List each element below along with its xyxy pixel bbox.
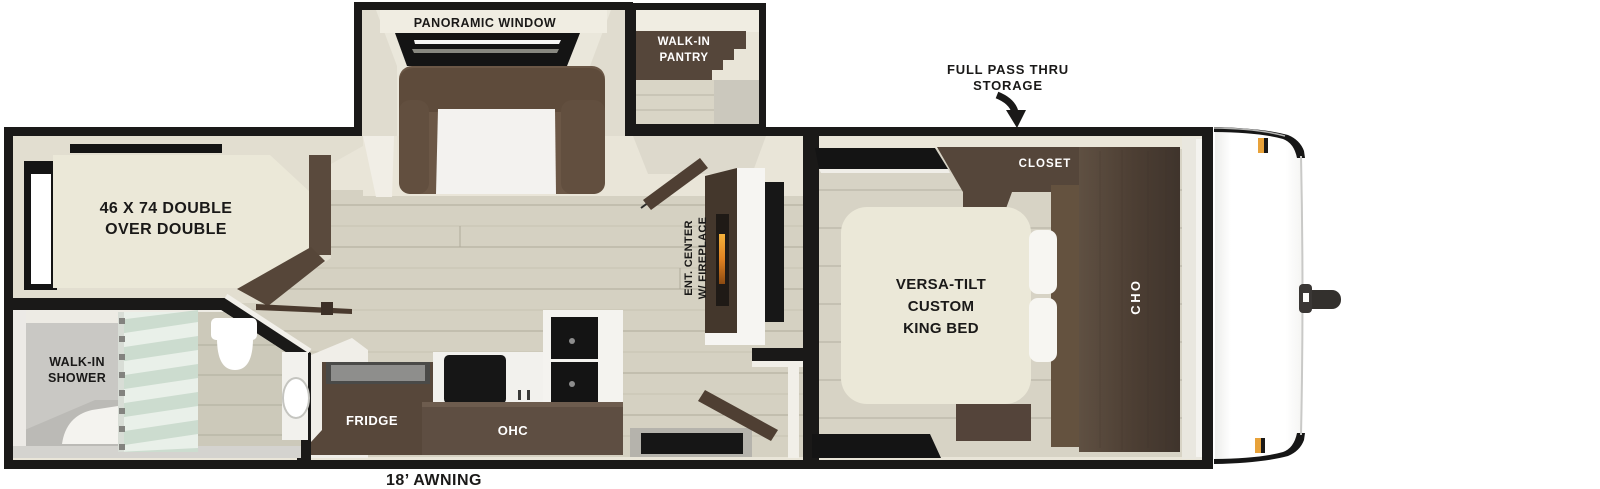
svg-text:C: C [1128,305,1143,315]
svg-text:PANORAMIC WINDOW: PANORAMIC WINDOW [414,16,556,30]
svg-text:18’ AWNING: 18’ AWNING [386,472,482,489]
svg-text:ENT. CENTER: ENT. CENTER [683,220,695,295]
svg-text:KING BED: KING BED [903,320,979,337]
svg-text:VERSA-TILT: VERSA-TILT [896,276,986,293]
svg-text:WALK-IN: WALK-IN [658,36,711,48]
svg-text:WALK-IN: WALK-IN [49,355,105,369]
svg-text:H: H [1128,293,1143,302]
svg-text:O: O [1128,281,1143,291]
svg-text:SHOWER: SHOWER [48,371,106,385]
svg-text:PANTRY: PANTRY [660,52,709,64]
svg-text:CLOSET: CLOSET [1019,158,1072,170]
svg-text:FRIDGE: FRIDGE [346,413,398,428]
svg-text:FULL PASS THRU: FULL PASS THRU [947,62,1069,77]
svg-text:46 X 74 DOUBLE: 46 X 74 DOUBLE [100,200,233,217]
svg-text:W/ FIREPLACE: W/ FIREPLACE [697,217,709,299]
svg-text:CUSTOM: CUSTOM [908,298,975,315]
svg-text:OVER DOUBLE: OVER DOUBLE [105,221,227,238]
svg-text:STORAGE: STORAGE [973,78,1043,93]
svg-text:OHC: OHC [498,423,529,438]
